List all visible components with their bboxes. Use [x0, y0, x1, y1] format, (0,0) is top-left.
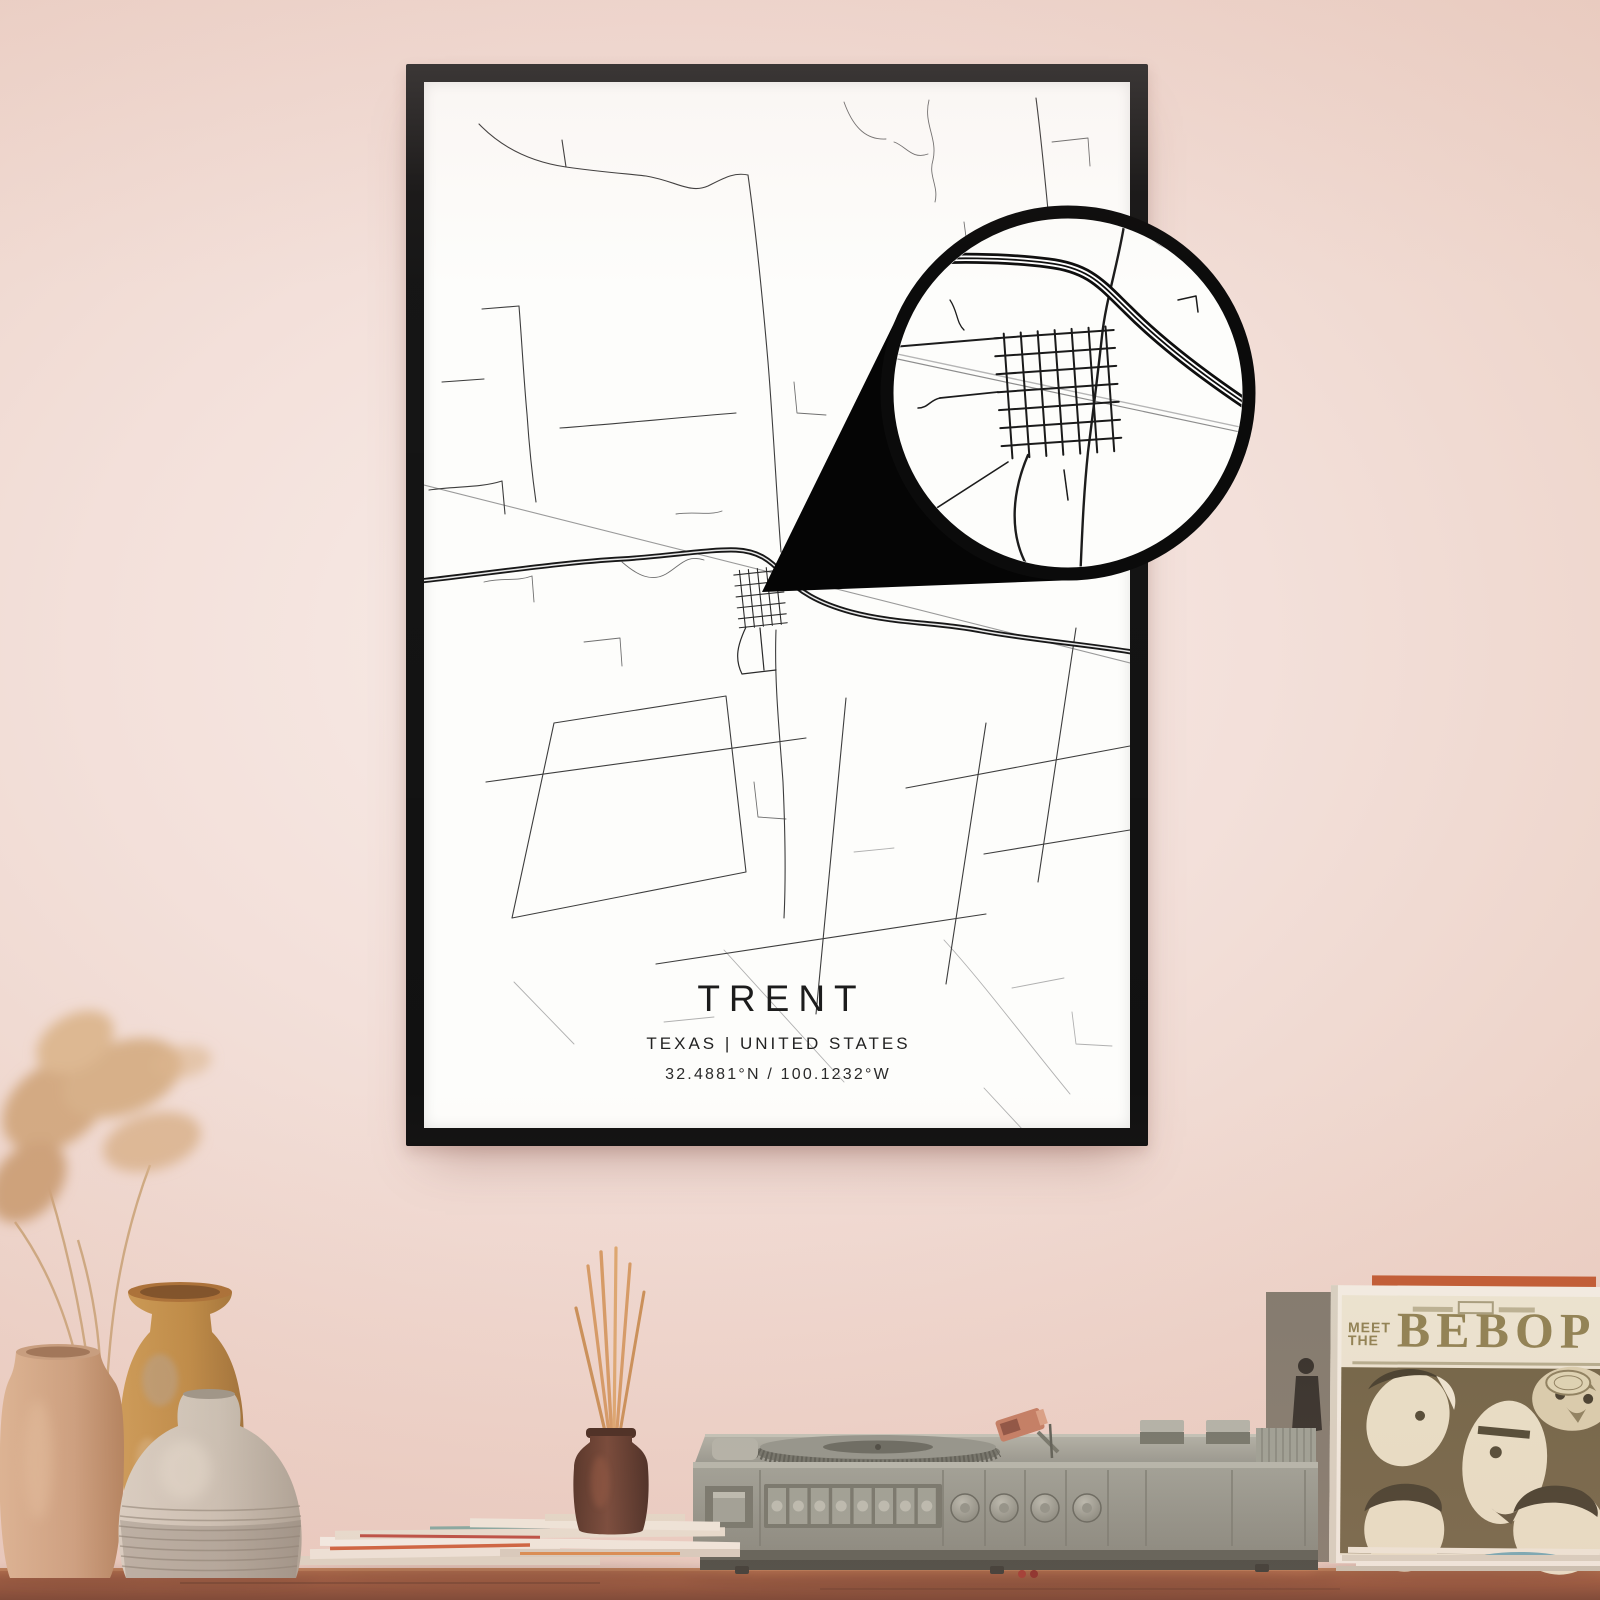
record-player: [693, 1406, 1318, 1578]
diffuser-sticks: [576, 1248, 644, 1444]
push-buttons: [764, 1484, 942, 1528]
turntable-deck: [693, 1436, 1318, 1468]
power-button: [705, 1486, 753, 1528]
red-foot: [1030, 1570, 1038, 1578]
poster-caption: TRENT TEXAS | UNITED STATES 32.4881°N / …: [424, 978, 1130, 1084]
sleeve-headline: MEET THE BEBOP: [1348, 1307, 1600, 1353]
sleeve-line2: THE: [1348, 1332, 1379, 1348]
sleeve-artwork: [1340, 1359, 1600, 1575]
red-foot: [1018, 1570, 1026, 1578]
vase-mustard: [120, 1282, 244, 1504]
platter-lever: [712, 1438, 758, 1460]
ribbed-lid: [1256, 1428, 1316, 1462]
sleeve-meet-the: MEET THE: [1348, 1321, 1391, 1347]
room-scene: TRENT TEXAS | UNITED STATES 32.4881°N / …: [0, 0, 1600, 1600]
stacked-records: [1336, 1547, 1600, 1571]
magazine-stack: [300, 1514, 740, 1565]
poster-frame: TRENT TEXAS | UNITED STATES 32.4881°N / …: [406, 64, 1148, 1146]
front-panel: [693, 1468, 1318, 1550]
poster-coordinates: 32.4881°N / 100.1232°W: [424, 1066, 1130, 1084]
control-knobs: [951, 1494, 1101, 1522]
vase-tan: [0, 1344, 124, 1578]
tonearm: [995, 1406, 1058, 1458]
poster-title: TRENT: [424, 978, 1130, 1020]
shadows: [0, 1563, 1600, 1590]
vase-white: [119, 1389, 302, 1578]
city-map: [424, 82, 1130, 1128]
poster-subtitle: TEXAS | UNITED STATES: [424, 1034, 1130, 1054]
diffuser-bottle: [573, 1428, 648, 1535]
reed-diffuser: [573, 1248, 648, 1535]
table-surface: [0, 1568, 1600, 1600]
turntable-platter: [756, 1435, 1000, 1468]
pampas-grass: [0, 998, 214, 1435]
figure-silhouette: [1292, 1358, 1322, 1468]
map-poster: TRENT TEXAS | UNITED STATES 32.4881°N / …: [424, 82, 1130, 1128]
sleeve-title: BEBOP: [1397, 1307, 1597, 1352]
